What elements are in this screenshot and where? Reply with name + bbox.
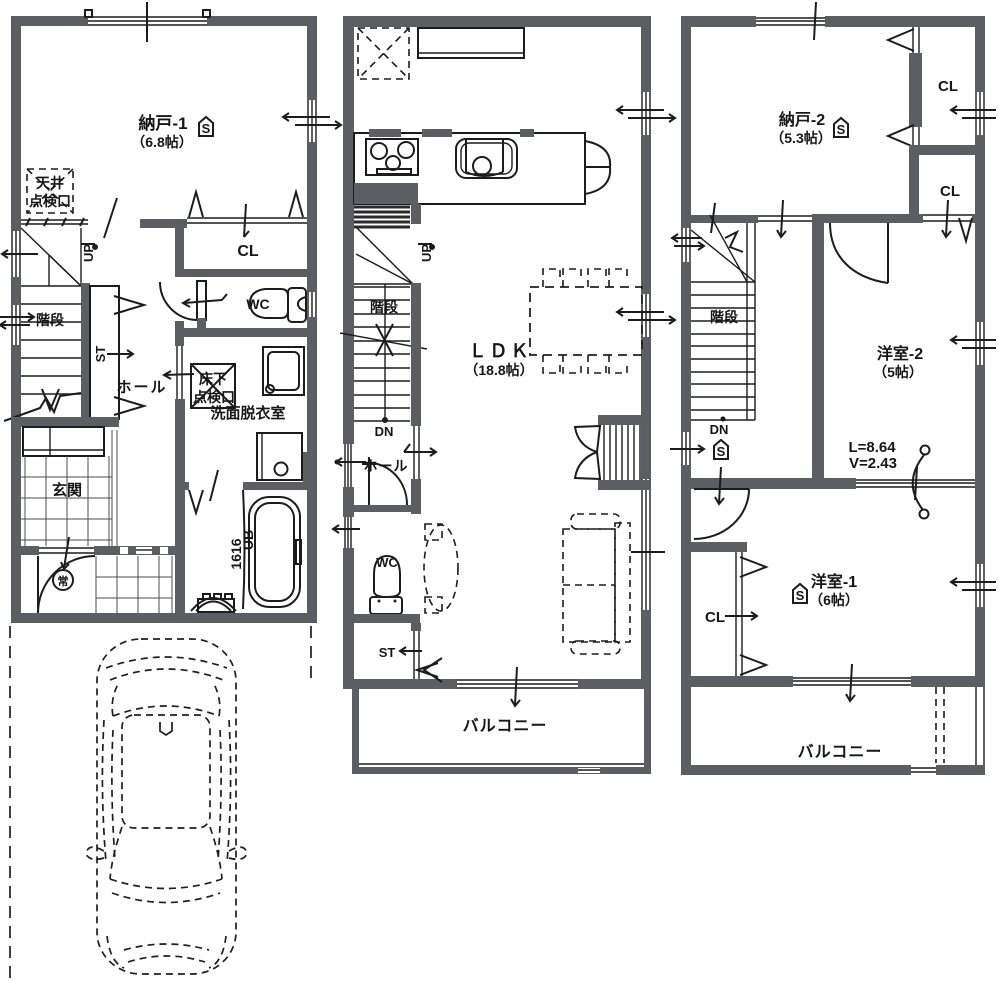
svg-text:CL: CL xyxy=(705,609,725,626)
svg-text:床下: 床下 xyxy=(199,371,227,387)
svg-text:CL: CL xyxy=(940,183,960,200)
svg-text:洋室-1: 洋室-1 xyxy=(811,572,857,591)
svg-text:1616: 1616 xyxy=(228,538,244,569)
svg-text:S: S xyxy=(796,588,805,603)
svg-text:CL: CL xyxy=(237,243,259,260)
svg-text:点検口: 点検口 xyxy=(29,193,71,209)
svg-text:ＬＤＫ: ＬＤＫ xyxy=(469,341,532,361)
svg-text:DN: DN xyxy=(375,424,394,439)
svg-text:階段: 階段 xyxy=(710,309,738,325)
svg-text:V=2.43: V=2.43 xyxy=(849,455,897,472)
svg-text:玄関: 玄関 xyxy=(52,481,82,499)
svg-text:常: 常 xyxy=(58,574,69,588)
svg-text:（6帖）: （6帖） xyxy=(809,592,859,608)
svg-text:洋室-2: 洋室-2 xyxy=(877,344,923,363)
svg-text:階段: 階段 xyxy=(36,312,64,328)
svg-text:ホール: ホール xyxy=(364,458,409,474)
svg-text:S: S xyxy=(202,121,211,136)
svg-text:バルコニー: バルコニー xyxy=(463,717,548,735)
svg-text:納戸-2: 納戸-2 xyxy=(779,110,825,129)
svg-text:L=8.64: L=8.64 xyxy=(848,439,896,456)
svg-text:（5帖）: （5帖） xyxy=(873,364,923,380)
svg-text:（18.8帖）: （18.8帖） xyxy=(464,362,533,378)
svg-text:ホール: ホール xyxy=(116,379,167,396)
svg-text:（6.8帖）: （6.8帖） xyxy=(131,134,192,150)
svg-text:ST: ST xyxy=(379,645,396,660)
svg-text:納戸-1: 納戸-1 xyxy=(138,113,187,133)
svg-text:S: S xyxy=(837,122,846,137)
svg-text:点検口: 点検口 xyxy=(193,389,235,405)
svg-text:洗面脱衣室: 洗面脱衣室 xyxy=(210,404,285,422)
svg-text:DN: DN xyxy=(710,422,729,437)
svg-text:ST: ST xyxy=(93,346,108,363)
svg-text:バルコニー: バルコニー xyxy=(798,743,883,761)
svg-text:階段: 階段 xyxy=(370,299,398,315)
svg-text:（5.3帖）: （5.3帖） xyxy=(770,130,831,146)
svg-text:天井: 天井 xyxy=(36,175,64,191)
svg-text:CL: CL xyxy=(938,78,958,95)
svg-text:S: S xyxy=(717,444,726,459)
